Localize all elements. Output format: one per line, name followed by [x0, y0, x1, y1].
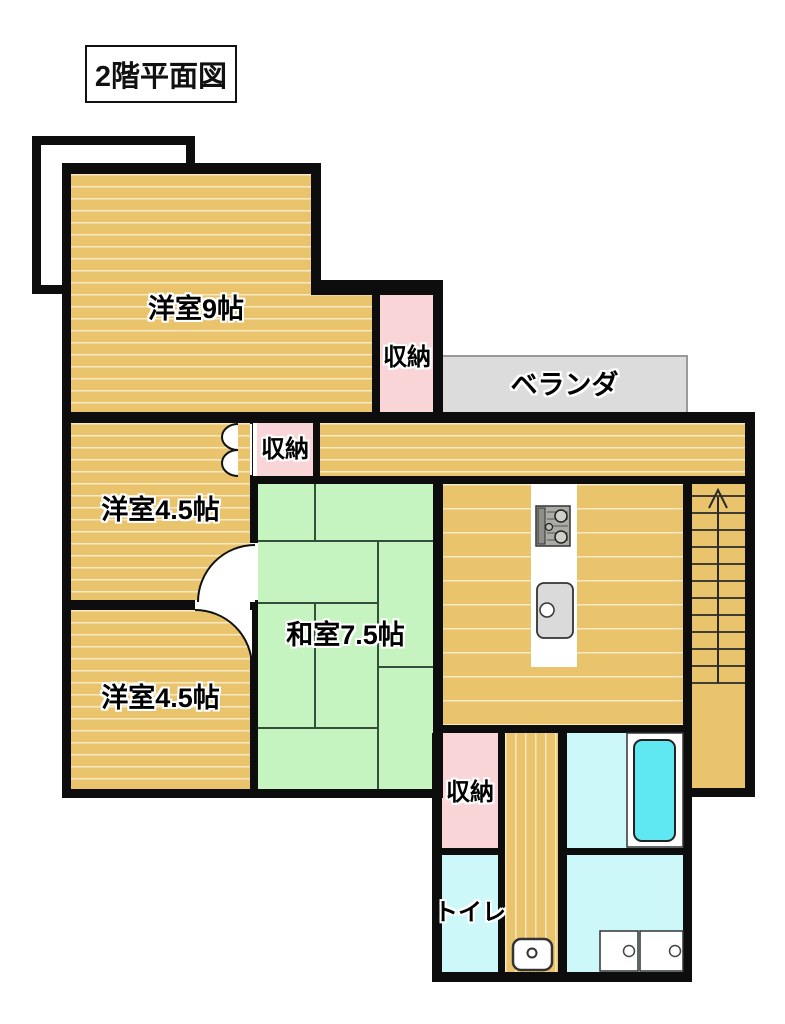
- label-storage-bottom: 収納: [442, 781, 498, 805]
- label-storage-hall: 収納: [250, 438, 320, 462]
- wall: [71, 600, 195, 610]
- wall: [62, 163, 71, 423]
- wall: [432, 733, 442, 982]
- label-veranda: ベランダ: [441, 372, 688, 399]
- hallway: [320, 423, 745, 476]
- wall: [567, 848, 683, 855]
- wall: [692, 788, 755, 797]
- plan-title-box: 2階平面図: [85, 45, 237, 103]
- label-toilet: トイレ: [430, 901, 510, 925]
- room-bath: [567, 733, 683, 848]
- wall: [62, 163, 321, 174]
- corridor-toilet: [505, 733, 558, 972]
- wall: [62, 423, 71, 798]
- wall: [498, 733, 505, 972]
- floor-plan: 2階平面図: [0, 0, 785, 1024]
- label-western9: 洋室9帖: [71, 296, 321, 323]
- wall: [433, 725, 692, 733]
- label-western45-upper: 洋室4.5帖: [71, 497, 250, 524]
- room-western9-upper: [71, 174, 311, 294]
- wall: [311, 280, 443, 295]
- wall: [311, 163, 321, 281]
- plan-title: 2階平面図: [95, 53, 227, 95]
- wall: [745, 412, 755, 797]
- room-washroom: [567, 855, 683, 972]
- wall: [442, 848, 498, 855]
- staircase: [692, 484, 745, 788]
- wall: [432, 972, 692, 982]
- wall: [62, 789, 443, 798]
- wall: [250, 600, 258, 790]
- wall: [558, 733, 567, 972]
- label-storage-top: 収納: [372, 346, 442, 370]
- kitchen-counter: [531, 484, 577, 667]
- wall: [683, 484, 692, 982]
- wall: [62, 412, 755, 423]
- wall: [250, 484, 258, 543]
- wall: [250, 476, 755, 484]
- label-western45-lower: 洋室4.5帖: [71, 685, 250, 712]
- label-japanese75: 和室7.5帖: [258, 622, 433, 649]
